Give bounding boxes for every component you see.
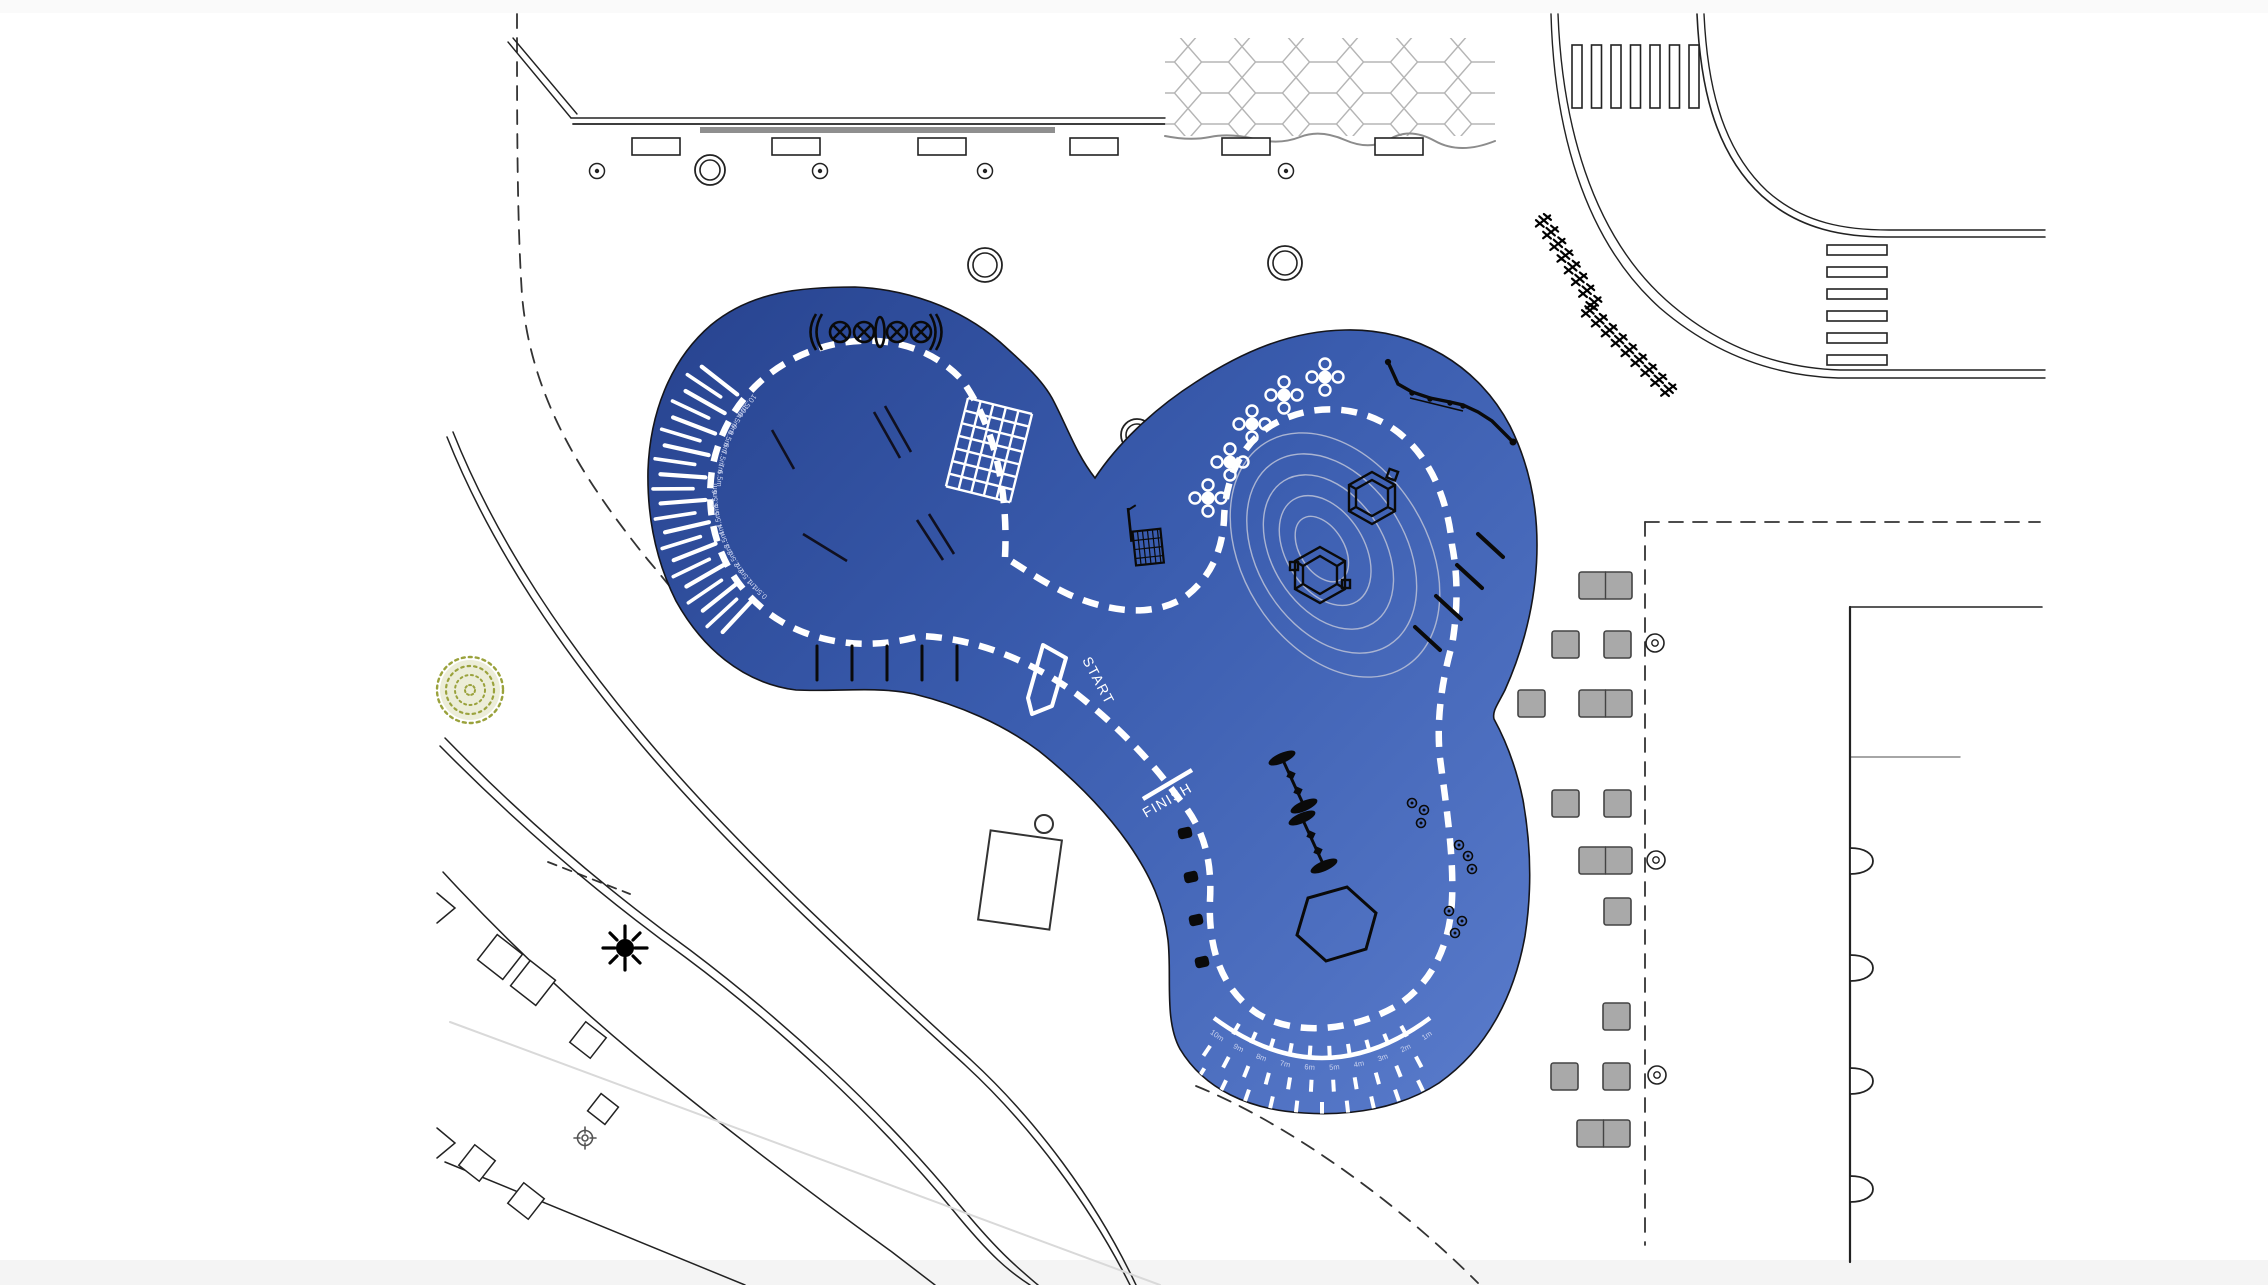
flower-center [1246, 418, 1259, 431]
bench-icon [918, 138, 966, 155]
crosswalk-stripe [1572, 45, 1582, 108]
flower-center [1319, 371, 1332, 384]
kiosk-building [978, 815, 1062, 930]
crosswalk-stripe [1592, 45, 1602, 108]
fan-tick [1310, 1046, 1311, 1058]
clipped-lot-mark [437, 893, 455, 923]
streetlight-icon [603, 926, 647, 970]
target-dot-icon [1471, 868, 1474, 871]
fan-tick [1270, 1096, 1273, 1108]
fan-tick [1355, 1077, 1357, 1089]
bench-icons [632, 138, 1423, 155]
target-dot-icon [1467, 855, 1470, 858]
target-dot-icon [1411, 802, 1414, 805]
small-building-icon [508, 1183, 544, 1219]
fan-tick [1290, 1043, 1292, 1055]
picnic-table-icon [1552, 631, 1579, 658]
shrub-icon [1657, 380, 1678, 400]
curved-road [1551, 14, 2045, 378]
small-building-icons [459, 935, 619, 1220]
bollard-icon [595, 169, 599, 173]
playground: 10.5m10m9.5m9m8.5m8m7.5m7m6.5m6m5.5m5m4.… [648, 287, 1537, 1114]
bollard-icon [1647, 851, 1665, 869]
crosswalk-stripe [1827, 289, 1887, 299]
target-dot-icon [1420, 822, 1423, 825]
site-plan-canvas: 10.5m10m9.5m9m8.5m8m7.5m7m6.5m6m5.5m5m4.… [0, 0, 2268, 1285]
picnic-table-icon [1603, 1003, 1630, 1030]
bench-icon [632, 138, 680, 155]
target-dot-icon [1448, 910, 1451, 913]
fan-tick [1333, 1080, 1334, 1092]
picnic-table-icon [1604, 898, 1631, 925]
site-plan: 10.5m10m9.5m9m8.5m8m7.5m7m6.5m6m5.5m5m4.… [0, 0, 2268, 1285]
fan-label: 6m [1304, 1062, 1315, 1072]
picnic-table-icon [1604, 790, 1631, 817]
crosswalk-stripe [1670, 45, 1680, 108]
building-shadow [700, 127, 1055, 133]
crosswalk-stripe [1650, 45, 1660, 108]
rubber-surface [648, 287, 1537, 1114]
north-building-edge [508, 38, 1165, 133]
small-building-icon [570, 1022, 606, 1058]
fan-tick [1371, 1096, 1374, 1108]
crosswalk-stripe [1827, 355, 1887, 365]
small-building-icon [478, 935, 523, 980]
road-line [443, 872, 935, 1285]
fan-tick [1347, 1101, 1348, 1113]
fan-tick [1348, 1044, 1350, 1056]
small-building-icon [511, 961, 556, 1006]
target-dot-icon [1454, 932, 1457, 935]
flower-center [1224, 456, 1237, 469]
flower-center [1278, 389, 1291, 402]
deciduous-tree-icon [437, 657, 503, 723]
fan-tick [1296, 1101, 1297, 1113]
bench-icon [1070, 138, 1118, 155]
fan-label: 5m [1329, 1062, 1340, 1072]
crosswalk-stripe [1827, 333, 1887, 343]
paving-field [1165, 38, 1495, 148]
clipped-lot-mark [437, 1128, 455, 1158]
east-building [1850, 607, 2042, 1262]
crosswalk-stripe [1827, 245, 1887, 255]
east-zone-bollard-icons [1646, 634, 1666, 1084]
faint-lot-line [450, 1022, 1160, 1285]
bench-icon [1222, 138, 1270, 155]
bollard-icon [1646, 634, 1664, 652]
crosswalk-right [1827, 245, 1887, 365]
door-swing-icon [1850, 848, 1873, 874]
crosswalk-stripe [1611, 45, 1621, 108]
target-dot-icon [1458, 844, 1461, 847]
bollard-icon [1284, 169, 1288, 173]
crosswalk-stripe [1827, 267, 1887, 277]
property-boundary-dashed-se [1196, 1086, 1478, 1283]
picnic-table-icon [1552, 790, 1579, 817]
flower-center [1202, 492, 1215, 505]
picnic-table-icon [1603, 1063, 1630, 1090]
picnic-table-icon [1604, 631, 1631, 658]
fan-tick [1329, 1046, 1330, 1058]
bench-icon [1375, 138, 1423, 155]
shrub-icon [1532, 211, 1553, 231]
bench-icon [772, 138, 820, 155]
crosswalk-stripe [1689, 45, 1699, 108]
door-swing-icon [1850, 1176, 1873, 1202]
door-swing-icon [1850, 955, 1873, 981]
crosswalk-stripe [1631, 45, 1641, 108]
target-dot-icon [1461, 920, 1464, 923]
target-dot-icon [1423, 809, 1426, 812]
bollard-icon [818, 169, 822, 173]
page-top-band [0, 0, 2268, 13]
crosswalk-stripe [1827, 311, 1887, 321]
picnic-tables [1518, 572, 1632, 1147]
small-building-icon [588, 1094, 619, 1125]
crosswalk-top [1572, 45, 1699, 108]
survey-point-icon [574, 1127, 596, 1149]
small-building-icon [459, 1145, 495, 1181]
boundary-dashed-crossing [548, 862, 630, 894]
door-swing-icon [1850, 1068, 1873, 1094]
bollard-icon [983, 169, 987, 173]
east-building-doors [1850, 848, 1873, 1202]
fan-tick [1288, 1077, 1290, 1089]
picnic-table-icon [1551, 1063, 1578, 1090]
picnic-table-icon [1518, 690, 1545, 717]
fan-tick [1311, 1080, 1312, 1092]
bollard-icon [1648, 1066, 1666, 1084]
